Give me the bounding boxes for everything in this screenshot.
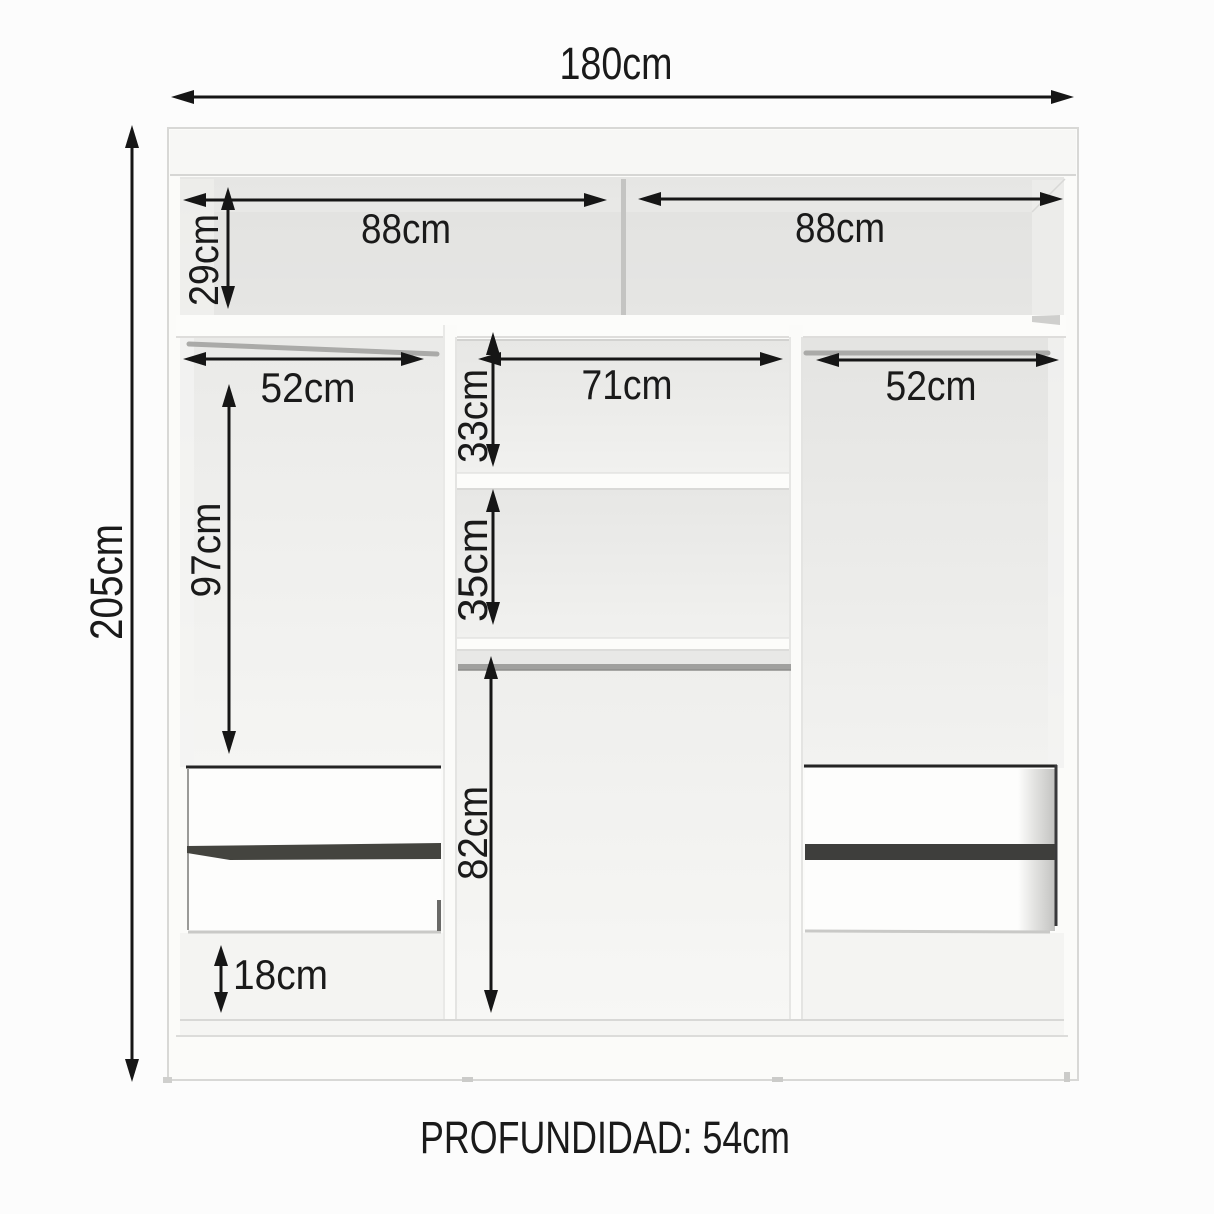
svg-text:29cm: 29cm: [180, 214, 227, 306]
svg-text:52cm: 52cm: [261, 364, 356, 411]
svg-text:52cm: 52cm: [886, 362, 977, 409]
svg-text:180cm: 180cm: [560, 38, 673, 89]
svg-text:18cm: 18cm: [233, 951, 328, 998]
svg-text:205cm: 205cm: [81, 524, 132, 640]
svg-text:PROFUNDIDAD: 54cm: PROFUNDIDAD: 54cm: [420, 1112, 790, 1163]
svg-text:88cm: 88cm: [795, 204, 885, 251]
svg-text:97cm: 97cm: [182, 503, 229, 598]
svg-text:71cm: 71cm: [582, 361, 673, 408]
svg-text:35cm: 35cm: [449, 518, 496, 622]
svg-text:82cm: 82cm: [449, 786, 496, 880]
svg-text:88cm: 88cm: [361, 205, 451, 252]
svg-text:33cm: 33cm: [449, 369, 496, 463]
